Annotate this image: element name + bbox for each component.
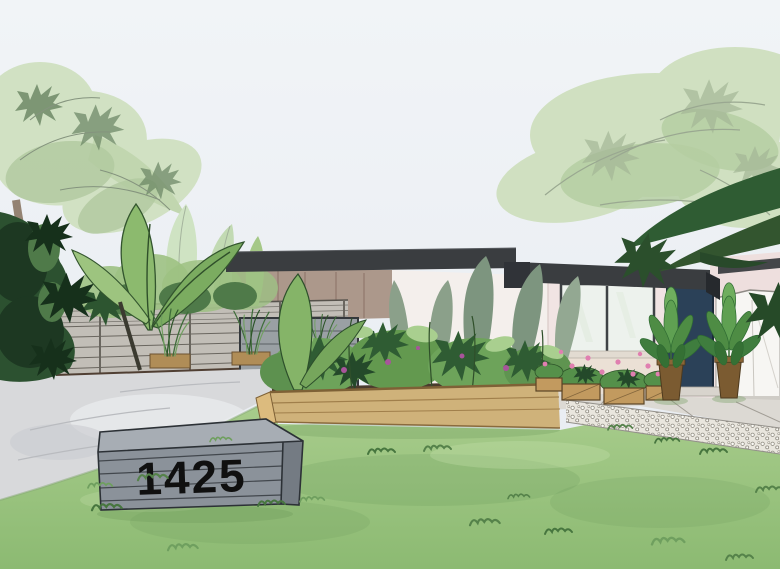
shrub-dark	[213, 282, 257, 310]
window-sill	[556, 351, 658, 358]
scene: 1425	[0, 0, 780, 569]
lawn-wash	[430, 441, 610, 469]
illustration-canvas: 1425	[0, 0, 780, 569]
lawn-wash	[550, 476, 770, 528]
concrete-wash	[10, 424, 110, 460]
